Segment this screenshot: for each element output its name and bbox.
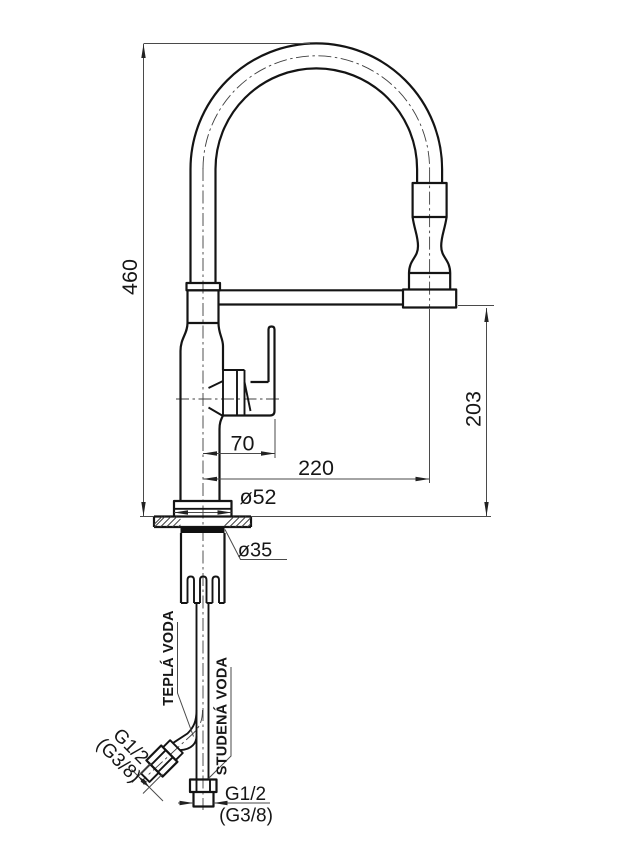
cartridge-lines — [223, 370, 245, 416]
dimension-total-height: 460 — [118, 44, 491, 517]
cold-thread-alt-size: (G3/8) — [219, 806, 273, 827]
dim52-arrow-left — [174, 510, 188, 514]
dim70-value: 70 — [231, 432, 255, 456]
cold-thread-callout: G1/2 (G3/8) — [178, 784, 273, 827]
cold-water-label: STUDENÁ VODA — [209, 656, 232, 778]
hot-thread-callout: G1/2 (G3/8) — [92, 721, 163, 801]
spout-arc — [191, 43, 443, 283]
centerlines — [141, 56, 430, 810]
spout-inner-edge — [216, 68, 418, 283]
dim70-arrow-left — [203, 451, 217, 455]
dim35-value: ø35 — [238, 540, 272, 562]
drawing-canvas: 460 203 70 220 ø52 ø35 TEPLÁ VO — [0, 0, 617, 845]
countertop-section — [154, 517, 251, 528]
body-right-edge-lower — [220, 416, 224, 502]
faucet-technical-drawing: 460 203 70 220 ø52 ø35 TEPLÁ VO — [0, 0, 617, 845]
spray-head-taper-left — [409, 217, 418, 273]
dim220-arrow-left — [203, 477, 217, 481]
cold-thread-size: G1/2 — [225, 784, 266, 805]
mounting-shank — [181, 527, 225, 603]
dim220-value: 220 — [298, 456, 334, 480]
countertop-hatch-right — [225, 517, 252, 528]
mixer-handle — [223, 327, 275, 416]
dimension-outlet-height: 203 — [458, 306, 494, 517]
countertop-hatch-left — [154, 517, 181, 528]
label-shank-diameter: ø35 — [225, 530, 287, 562]
dim460-value: 460 — [118, 259, 142, 295]
cold-hose-sides — [197, 603, 209, 780]
body-right-edge-upper — [219, 323, 224, 370]
dim52-value: ø52 — [239, 485, 276, 509]
faucet-body — [181, 283, 245, 501]
seal-washer — [181, 527, 225, 533]
cold-thread-arrow-left — [180, 801, 194, 805]
dim460-arrow-bottom — [141, 502, 145, 516]
dim203-arrow-bottom — [484, 502, 488, 516]
shank-slot-3 — [213, 577, 220, 604]
hot-hose-upper-edge — [173, 710, 197, 743]
hot-water-text: TEPLÁ VODA — [160, 610, 177, 706]
dim460-arrow-top — [141, 44, 145, 58]
handle-bottom-edge — [223, 411, 275, 416]
hot-connection-nut — [146, 746, 177, 777]
handle-lever — [269, 327, 275, 412]
cold-water-text: STUDENÁ VODA — [214, 656, 231, 775]
hot-label-leader — [178, 622, 194, 737]
dim52-arrow-right — [218, 510, 232, 514]
dim220-arrow-right — [416, 477, 430, 481]
dimension-base-diameter: ø52 — [174, 485, 277, 515]
dim70-arrow-right — [261, 451, 275, 455]
spout-outer-edge — [191, 43, 443, 283]
shank-slot-1 — [188, 577, 195, 604]
dim203-arrow-top — [484, 308, 488, 322]
spray-head-taper-right — [441, 217, 450, 273]
dim203-value: 203 — [462, 391, 486, 427]
hot-water-label: TEPLÁ VODA — [160, 610, 194, 737]
dimension-handle-reach: 70 — [203, 419, 275, 458]
hot-thread-text-group: G1/2 (G3/8) — [92, 721, 158, 787]
valve-cone-edges — [209, 381, 224, 416]
body-left-edge — [181, 323, 188, 501]
cold-thread-tail — [194, 792, 214, 807]
